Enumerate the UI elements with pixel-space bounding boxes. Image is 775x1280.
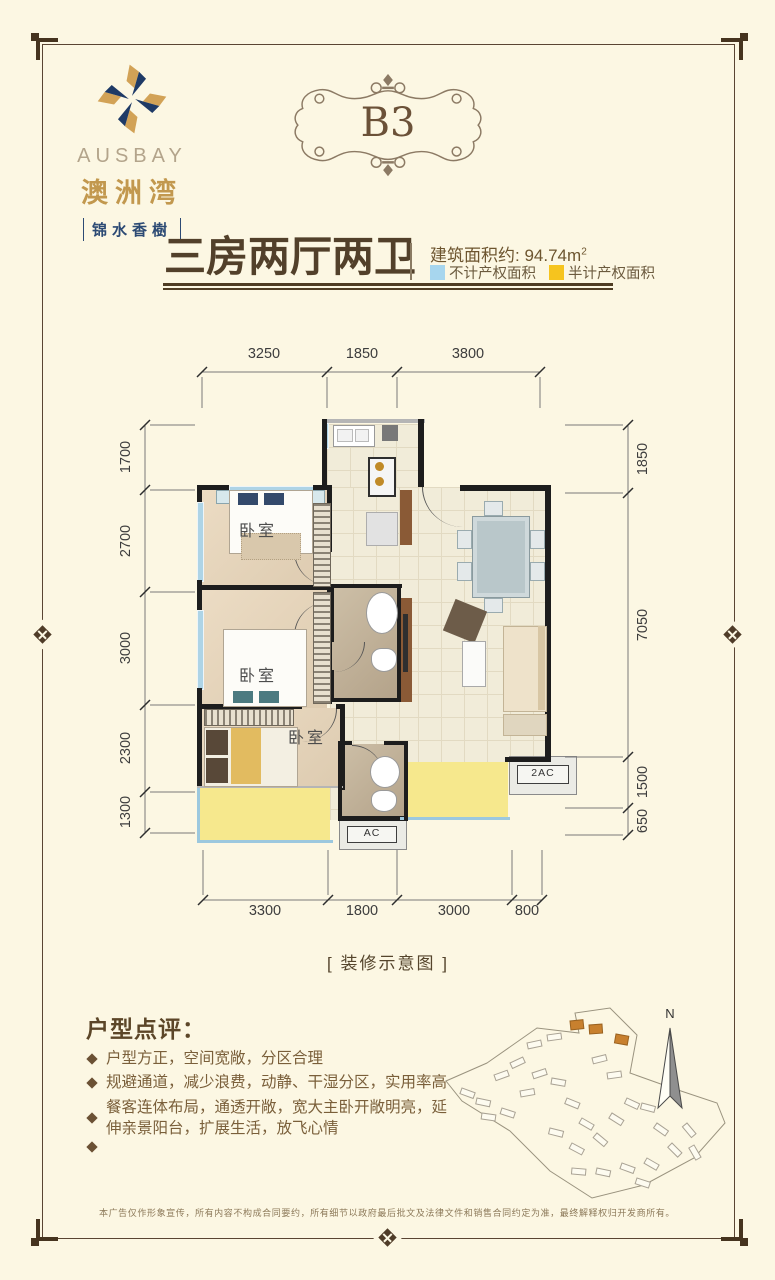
unit-badge-label: B3 (290, 100, 486, 146)
area-legend: 不计产权面积 半计产权面积 (430, 262, 655, 283)
compass-needle-icon (652, 1022, 688, 1114)
dim-label: 2300 (118, 718, 138, 778)
review-title: 户型点评： (86, 1010, 206, 1044)
header-rule (163, 283, 613, 290)
pinwheel-logo-icon (93, 60, 171, 138)
dimension-lines (95, 330, 680, 930)
legend-label: 半计产权面积 (568, 262, 655, 283)
dim-label: 650 (635, 791, 655, 851)
brand-logo: AUSBAY 澳洲湾 锦水香樹 (52, 60, 212, 241)
legend-item: 不计产权面积 (430, 262, 536, 283)
dim-label: 3250 (234, 346, 294, 366)
plan-caption: [ 装修示意图 ] (288, 949, 488, 974)
dim-label: 3300 (235, 903, 295, 923)
review-list: 户型方正，空间宽敞，分区合理 规避通道，减少浪费，动静、干湿分区，实用率高 餐客… (88, 1048, 450, 1154)
review-bullet-text: 规避通道，减少浪费，动静、干湿分区，实用率高 (106, 1072, 447, 1093)
corner-ornament (36, 38, 58, 60)
corner-ornament (36, 1219, 58, 1241)
legend-swatch-yellow (549, 265, 564, 280)
area-sup: 2 (581, 246, 587, 257)
header-divider (410, 243, 412, 280)
bullet-diamond-icon (86, 1077, 97, 1088)
review-bullet: 餐客连体布局，通透开敞，宽大主卧开敞明亮，延伸亲景阳台，扩展生活，放飞心情 (88, 1097, 450, 1140)
site-map (432, 1003, 747, 1213)
unit-badge: B3 (290, 74, 486, 186)
legend-label: 不计产权面积 (449, 262, 536, 283)
dim-label: 1850 (635, 429, 655, 489)
bullet-diamond-icon (86, 1053, 97, 1064)
dim-label: 3800 (438, 346, 498, 366)
dim-label: 1700 (118, 427, 138, 487)
compass-north-label: N (652, 1006, 688, 1021)
review-bullet: 户型方正，空间宽敞，分区合理 (88, 1048, 450, 1069)
review-bullet-text: 餐客连体布局，通透开敞，宽大主卧开敞明亮，延伸亲景阳台，扩展生活，放飞心情 (106, 1097, 450, 1140)
compass: N (652, 1006, 688, 1119)
dim-label: 2700 (118, 511, 138, 571)
poster-page: AUSBAY 澳洲湾 锦水香樹 B3 三房两厅两卫 建筑面积约: 94.74m2 (0, 0, 775, 1280)
bullet-diamond-icon (86, 1141, 97, 1152)
review-bullet: 规避通道，减少浪费，动静、干湿分区，实用率高 (88, 1072, 450, 1093)
corner-ornament (721, 1219, 743, 1241)
dim-label: 7050 (635, 595, 655, 655)
dim-label: 3000 (424, 903, 484, 923)
page-title: 三房两厅两卫 (164, 236, 416, 278)
brand-name-en: AUSBAY (52, 145, 212, 168)
corner-ornament (721, 38, 743, 60)
dim-label: 800 (497, 903, 557, 923)
disclaimer-text: 本广告仅作形象宣传，所有内容不构成合同要约，所有细节以政府最后批文及法律文件和销… (87, 1206, 687, 1219)
dim-label: 3000 (118, 618, 138, 678)
bullet-diamond-icon (86, 1112, 97, 1123)
dim-label: 1300 (118, 782, 138, 842)
dim-label: 1850 (332, 346, 392, 366)
legend-swatch-blue (430, 265, 445, 280)
review-bullet (88, 1143, 450, 1151)
brand-name-cn: 澳洲湾 (52, 171, 212, 210)
review-bullet-text: 户型方正，空间宽敞，分区合理 (106, 1048, 323, 1069)
dim-label: 1800 (332, 903, 392, 923)
legend-item: 半计产权面积 (549, 262, 655, 283)
